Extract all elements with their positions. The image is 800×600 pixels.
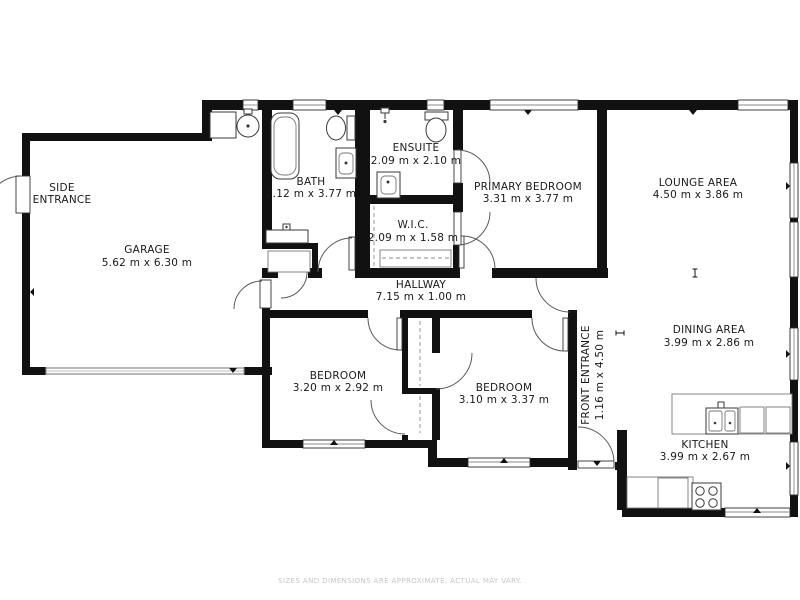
side-entrance-door — [0, 176, 30, 213]
disclaimer-text: SIZES AND DIMENSIONS ARE APPROXIMATE, AC… — [278, 577, 522, 585]
side-entrance-label-line2: ENTRANCE — [33, 194, 92, 206]
ensuite-toilet — [425, 112, 448, 142]
linen-closet-shelf — [268, 251, 310, 272]
closet-b-door — [371, 400, 405, 434]
side-entrance-label-line1: SIDE — [49, 182, 74, 194]
kitchen-island — [672, 394, 792, 434]
ensuite-sink — [377, 172, 400, 198]
bath-label: BATH — [297, 176, 326, 188]
front-entrance-label: FRONT ENTRANCE — [580, 325, 592, 424]
window — [490, 100, 578, 110]
wic-label: W.I.C. — [397, 219, 428, 231]
garage-dims: 5.62 m x 6.30 m — [102, 257, 193, 269]
bath-basin-cabinet — [266, 224, 308, 243]
bathtub — [271, 113, 299, 179]
kitchen-counter — [627, 477, 693, 508]
wic-door — [454, 212, 490, 245]
window — [790, 328, 798, 380]
bedroom2-door — [532, 318, 568, 351]
garage-door — [46, 368, 244, 374]
bath-dims: 2.12 m x 3.77 m — [266, 188, 357, 200]
primary-bedroom-door — [459, 236, 495, 269]
window — [293, 100, 326, 110]
stove — [692, 483, 721, 510]
hallway-dims: 7.15 m x 1.00 m — [376, 291, 467, 303]
primary-bedroom-label: PRIMARY BEDROOM — [474, 181, 582, 193]
opening-mark — [693, 269, 698, 277]
garage-washer — [210, 112, 236, 138]
hallway-east-door — [536, 278, 570, 312]
bedroom2-label: BEDROOM — [476, 382, 533, 394]
dining-dims: 3.99 m x 2.86 m — [664, 337, 755, 349]
ensuite-shower — [381, 108, 389, 123]
garage-hallway-door — [234, 280, 271, 309]
window — [427, 100, 444, 110]
bath-vanity — [336, 148, 356, 178]
hallway-label: HALLWAY — [396, 279, 446, 291]
window — [790, 442, 798, 495]
closet-a-door — [436, 353, 472, 389]
wic-dims: 2.09 m x 1.58 m — [368, 232, 459, 244]
opening-mark — [616, 331, 624, 336]
garage-label: GARAGE — [124, 244, 169, 256]
window — [468, 458, 530, 467]
garage-utility-sink — [237, 109, 259, 137]
bedroom1-label: BEDROOM — [310, 370, 367, 382]
window — [790, 163, 798, 218]
kitchen-dims: 3.99 m x 2.67 m — [660, 451, 751, 463]
floorplan-page: SIDE ENTRANCE GARAGE 5.62 m x 6.30 m BAT… — [0, 0, 800, 600]
window — [790, 222, 798, 277]
bedroom2-dims: 3.10 m x 3.37 m — [459, 394, 550, 406]
floorplan-diagram: SIDE ENTRANCE GARAGE 5.62 m x 6.30 m BAT… — [0, 0, 800, 600]
bedroom1-dims: 3.20 m x 2.92 m — [293, 382, 384, 394]
ensuite-label: ENSUITE — [393, 142, 440, 154]
bath-toilet — [327, 116, 356, 140]
bath-door — [318, 237, 355, 272]
linen-closet-door — [281, 272, 307, 298]
lounge-dims: 4.50 m x 3.86 m — [653, 189, 744, 201]
kitchen-label: KITCHEN — [681, 439, 728, 451]
dining-label: DINING AREA — [673, 324, 746, 336]
window — [738, 100, 788, 110]
lounge-label: LOUNGE AREA — [659, 177, 738, 189]
front-entrance-dims: 1.16 m x 4.50 m — [594, 330, 606, 421]
ensuite-dims: 2.09 m x 2.10 m — [371, 155, 462, 167]
bedroom1-door — [368, 318, 402, 350]
primary-bedroom-dims: 3.31 m x 3.77 m — [483, 193, 574, 205]
